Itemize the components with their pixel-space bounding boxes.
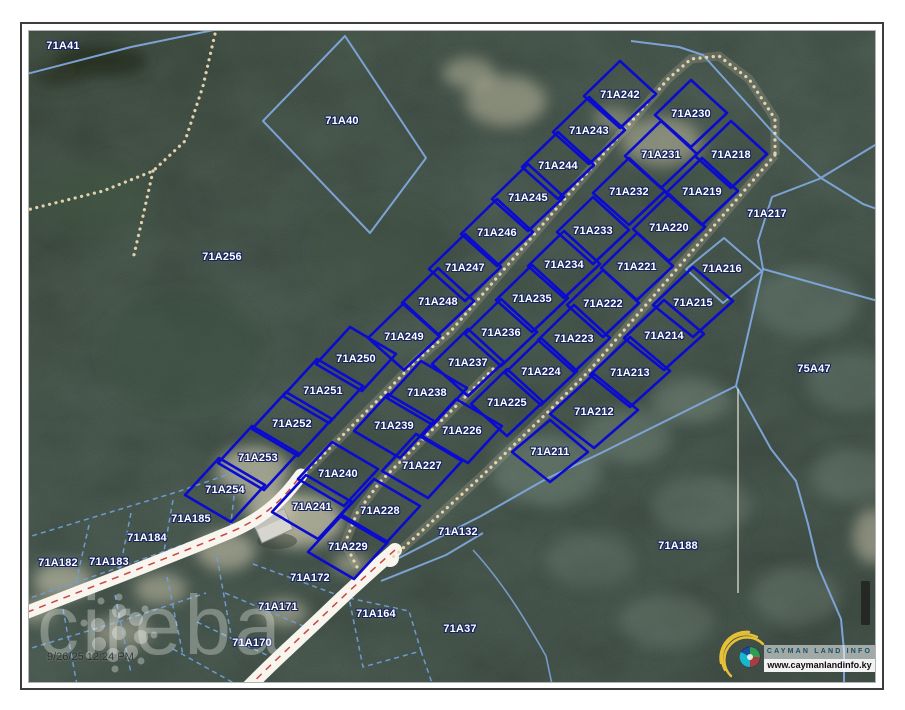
caymanlandinfo-logo-title: CAYMAN LAND INFO xyxy=(764,645,875,659)
caymanlandinfo-logo-strips: CAYMAN LAND INFO www.caymanlandinfo.ky xyxy=(764,645,875,672)
aerial-map-canvas[interactable]: 71A4171A4071A25671A24271A23071A24371A231… xyxy=(29,31,875,682)
photo-timestamp: 9/26/25 12:24 PM xyxy=(47,651,134,663)
caymanlandinfo-logo-url: www.caymanlandinfo.ky xyxy=(764,659,875,672)
aerial-map-svg xyxy=(29,31,875,682)
caymanlandinfo-logo: CAYMAN LAND INFO www.caymanlandinfo.ky xyxy=(719,629,875,682)
photo-frame: 71A4171A4071A25671A24271A23071A24371A231… xyxy=(20,22,884,690)
dark-marker-bar xyxy=(861,581,870,625)
photo-frame-inner: 71A4171A4071A25671A24271A23071A24371A231… xyxy=(28,30,876,683)
aerial-imagery xyxy=(29,31,875,682)
